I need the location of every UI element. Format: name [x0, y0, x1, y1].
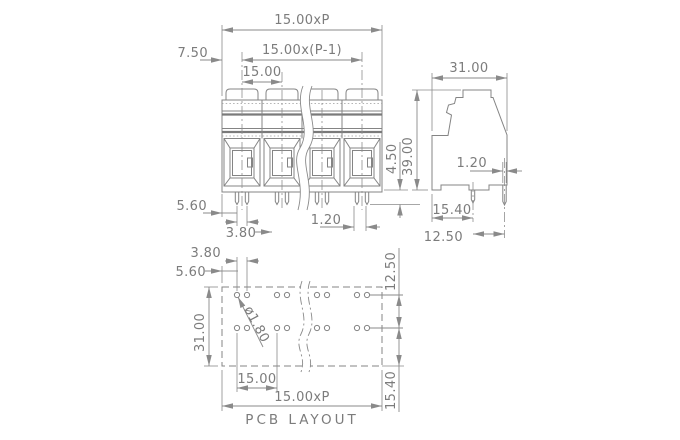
side-dimensions: 31.00 39.00 1.20 15.40 12.50: [401, 61, 522, 245]
front-view: 15.00xP 15.00x(P-1) 7.50 15.00 5.60 3.80…: [176, 13, 420, 241]
technical-drawing-page: 15.00xP 15.00x(P-1) 7.50 15.00 5.60 3.80…: [0, 0, 680, 440]
dim-pcb-edge-offset: 5.60: [175, 265, 206, 280]
terminal-block-drawing: 15.00xP 15.00x(P-1) 7.50 15.00 5.60 3.80…: [0, 0, 680, 440]
dim-front-pin-pair: 3.80: [226, 226, 257, 241]
dim-side-pin-spacing: 12.50: [424, 230, 463, 245]
dim-pcb-hole-pair: 3.80: [190, 246, 221, 261]
dim-pcb-row-offset: 15.40: [384, 371, 399, 410]
dim-pcb-depth: 31.00: [193, 313, 208, 352]
dim-side-pin-offset: 15.40: [432, 203, 471, 218]
dim-pcb-pitch: 15.00: [237, 372, 276, 387]
dim-front-edge-offset: 5.60: [176, 199, 207, 214]
dim-front-pin-width: 1.20: [311, 213, 342, 228]
dim-front-pin-length: 4.50: [385, 143, 400, 174]
dim-side-pin-width: 1.20: [456, 156, 487, 171]
dim-front-pitch: 15.00: [242, 65, 281, 80]
dim-pcb-total: 15.00xP: [274, 390, 330, 405]
side-view: 31.00 39.00 1.20 15.40 12.50: [401, 61, 522, 245]
break-line-pcb: [299, 281, 312, 372]
dim-front-half-pitch: 7.50: [177, 46, 208, 61]
dim-pcb-hole-dia: ø1.80: [240, 304, 272, 345]
pcb-caption: PCB LAYOUT: [245, 412, 358, 428]
dim-front-span: 15.00x(P-1): [262, 43, 342, 58]
dim-side-width: 31.00: [449, 61, 488, 76]
dim-pcb-row-spacing: 12.50: [384, 252, 399, 291]
dim-side-height: 39.00: [401, 137, 416, 176]
front-dimensions: 15.00xP 15.00x(P-1) 7.50 15.00 5.60 3.80…: [176, 13, 420, 241]
pcb-layout-view: 31.00 3.80 5.60 ø1.80 15.00 15.00xP 12.5…: [175, 246, 404, 428]
dim-front-total: 15.00xP: [274, 13, 330, 28]
